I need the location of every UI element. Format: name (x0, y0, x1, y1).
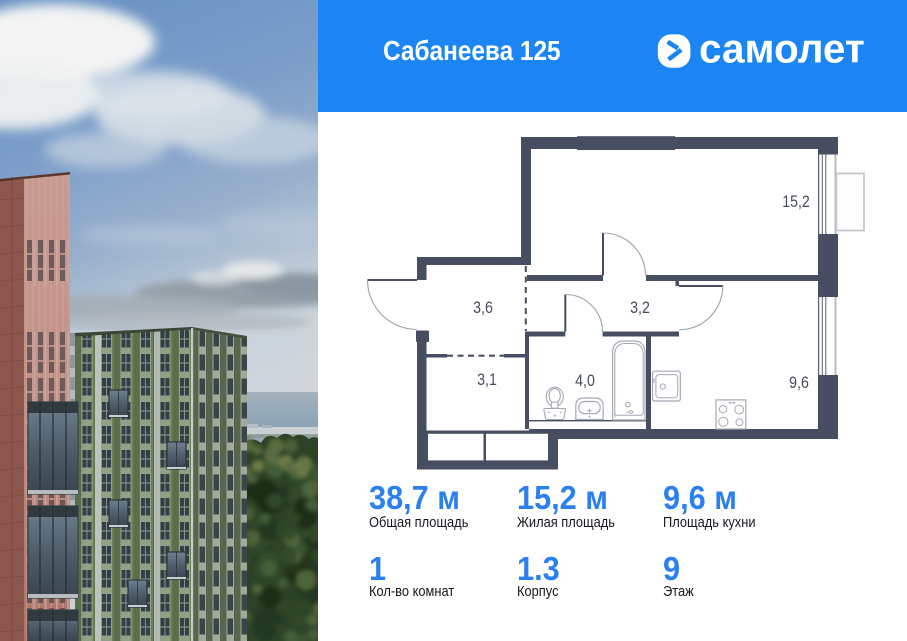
svg-text:3,1: 3,1 (477, 371, 497, 389)
svg-text:4,0: 4,0 (575, 372, 595, 390)
svg-text:3,2: 3,2 (630, 299, 650, 317)
svg-text:самолет: самолет (699, 28, 865, 72)
svg-text:15,2: 15,2 (782, 193, 810, 211)
svg-text:9,6: 9,6 (789, 374, 809, 392)
svg-text:3,6: 3,6 (473, 299, 493, 317)
